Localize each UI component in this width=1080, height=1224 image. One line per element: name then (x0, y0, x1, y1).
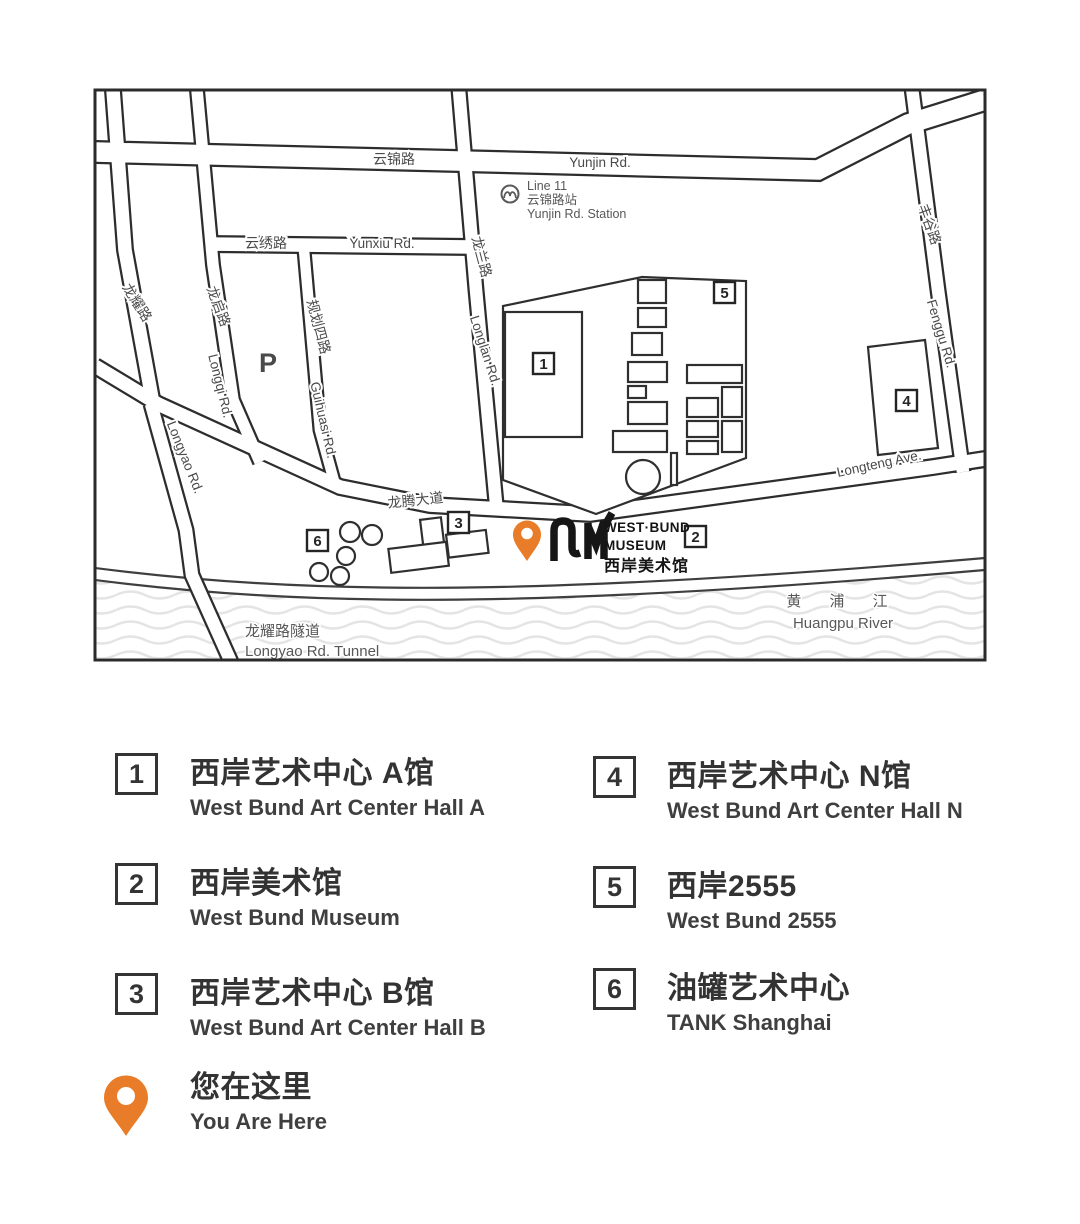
metro-station-zh: 云锦路站 (527, 192, 577, 207)
legend-subtitle-2: West Bund Museum (190, 905, 400, 931)
legend-num-box-3: 3 (115, 973, 158, 1015)
you-are-here-pin-legend (98, 1058, 156, 1140)
legend-subtitle-4: West Bund Art Center Hall N (667, 798, 963, 824)
location-pin-icon-hole (521, 528, 533, 540)
legend-title-you-are-here: 您在这里 (190, 1062, 312, 1106)
svg-text:2: 2 (691, 529, 699, 546)
huangpu-river-label-zh: 黄 浦 江 (786, 593, 899, 610)
legend-title-6: 油罐艺术中心 (667, 963, 850, 1007)
svg-text:6: 6 (313, 533, 321, 550)
location-pin-icon-hole (117, 1087, 135, 1105)
svg-text:1: 1 (539, 356, 547, 373)
yunjin-rd-label-zh: 云锦路 (373, 151, 415, 167)
museum-logo-line3: 西岸美术馆 (604, 556, 689, 575)
map-marker-4: 4 (896, 390, 917, 411)
legend-title-4: 西岸艺术中心 N馆 (667, 751, 912, 795)
metro-station-en: Yunjin Rd. Station (527, 207, 626, 221)
svg-text:5: 5 (720, 285, 728, 302)
location-pin-icon (104, 1076, 148, 1137)
svg-text:4: 4 (902, 393, 911, 410)
map-marker-5: 5 (714, 282, 735, 303)
map-marker-3: 3 (448, 512, 469, 533)
legend-subtitle-3: West Bund Art Center Hall B (190, 1015, 486, 1041)
yunxiu-rd-label-zh: 云绣路 (245, 235, 287, 251)
art-center-hall-b-building (385, 512, 489, 573)
legend-num-5: 5 (607, 872, 622, 903)
museum-logo-line1: WEST·BUND (604, 520, 690, 535)
yunjin-rd-label-en: Yunjin Rd. (569, 155, 631, 170)
west-bund-museum-logo: WEST·BUND MUSEUM 西岸美术馆 (554, 513, 690, 575)
round-building (626, 460, 660, 494)
map-marker-6: 6 (307, 530, 328, 551)
legend-title-1: 西岸艺术中心 A馆 (190, 748, 435, 792)
legend-title-5: 西岸2555 (667, 861, 797, 905)
map-marker-1: 1 (533, 353, 554, 374)
legend-num-6: 6 (607, 974, 622, 1005)
legend-num-box-6: 6 (593, 968, 636, 1010)
longqi-rd-label-zh: 龙启路 (204, 284, 234, 329)
location-pin-icon (513, 521, 541, 562)
legend-num-box-2: 2 (115, 863, 158, 905)
legend-num-box-1: 1 (115, 753, 158, 795)
you-are-here-pin-map (513, 521, 541, 562)
legend-num-box-5: 5 (593, 866, 636, 908)
parking-label: P (259, 348, 277, 378)
longyao-tunnel-label-zh: 龙耀路隧道 (245, 623, 320, 640)
legend-subtitle-5: West Bund 2555 (667, 908, 837, 934)
legend-num-3: 3 (129, 979, 144, 1010)
svg-text:3: 3 (454, 515, 462, 532)
yunxiu-rd-label-en: Yunxiu Rd. (349, 236, 414, 251)
legend-num-1: 1 (129, 759, 144, 790)
legend-subtitle-6: TANK Shanghai (667, 1010, 832, 1036)
legend-subtitle-you-are-here: You Are Here (190, 1109, 327, 1135)
legend-subtitle-1: West Bund Art Center Hall A (190, 795, 485, 821)
legend-num-box-4: 4 (593, 756, 636, 798)
fenggu-rd-label-zh: 丰谷路 (915, 202, 944, 247)
longyao-tunnel-label-en: Longyao Rd. Tunnel (245, 643, 379, 660)
legend-num-4: 4 (607, 762, 622, 793)
area-map: Line 11 云锦路站 Yunjin Rd. Station 云锦路 Yunj… (0, 0, 1080, 700)
legend-num-2: 2 (129, 869, 144, 900)
metro-line-label: Line 11 (527, 179, 567, 193)
metro-station: Line 11 云锦路站 Yunjin Rd. Station (502, 179, 627, 221)
fenggu-rd-label-en: Fenggu Rd. (924, 298, 959, 370)
huangpu-river-label-en: Huangpu River (793, 615, 893, 632)
west-bund-map-page: Line 11 云锦路站 Yunjin Rd. Station 云锦路 Yunj… (0, 0, 1080, 1224)
museum-logo-line2: MUSEUM (604, 538, 666, 553)
legend-title-2: 西岸美术馆 (190, 858, 343, 902)
legend-title-3: 西岸艺术中心 B馆 (190, 968, 435, 1012)
